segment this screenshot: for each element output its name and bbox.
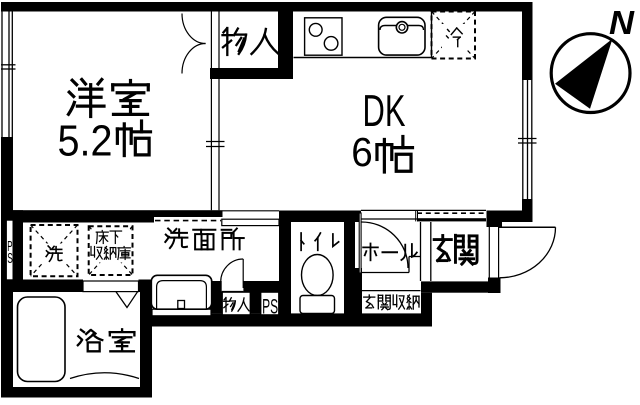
svg-text:N: N <box>609 4 635 41</box>
svg-text:PS: PS <box>262 296 278 319</box>
svg-text:6: 6 <box>351 129 373 175</box>
svg-text:S: S <box>7 251 13 267</box>
svg-text:5.2: 5.2 <box>58 117 113 166</box>
